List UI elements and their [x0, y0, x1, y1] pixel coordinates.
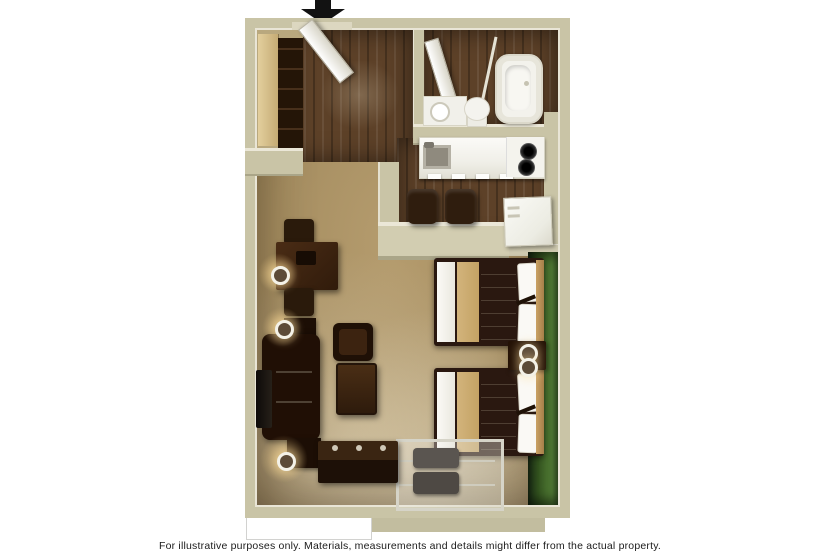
- headboard: [536, 260, 544, 344]
- console-knob: [356, 445, 362, 451]
- bed-1: [434, 258, 544, 346]
- table-lamp: [275, 320, 294, 339]
- cooktop-burner: [518, 159, 535, 176]
- counter-drawer-handle: [476, 174, 489, 179]
- cooktop-burner: [520, 143, 537, 160]
- floor-plan-page: For illustrative purposes only. Material…: [0, 0, 820, 560]
- bathtub-drain: [524, 81, 529, 86]
- tv: [256, 370, 272, 428]
- refrigerator-handle: [508, 214, 520, 217]
- closet-shelves: [278, 38, 303, 148]
- kitchen-sink: [423, 145, 451, 169]
- bed-accent-stripe: [457, 262, 479, 342]
- sofa-cushions: [276, 343, 312, 431]
- vanity-sink: [430, 102, 450, 122]
- nightstand-lamp: [519, 358, 538, 377]
- vanity: [423, 96, 467, 126]
- console-knob: [380, 445, 386, 451]
- counter-drawer-handle: [428, 174, 441, 179]
- luggage-rack: [396, 439, 504, 511]
- kitchen-half-wall: [378, 222, 509, 260]
- bathtub-basin: [505, 65, 531, 111]
- entrance-arrow-stem: [315, 0, 331, 9]
- console-knob: [332, 445, 338, 451]
- headboard: [536, 370, 544, 454]
- bed-foot-linen: [437, 262, 455, 342]
- kitchen-faucet: [424, 142, 434, 148]
- luggage-bag: [413, 448, 459, 468]
- wardrobe: [258, 34, 279, 146]
- armchair: [333, 323, 373, 361]
- ottoman: [336, 363, 377, 415]
- bar-stool: [407, 189, 438, 224]
- bathtub: [495, 54, 543, 124]
- closet-stub-wall: [245, 148, 303, 176]
- disclaimer-text: For illustrative purposes only. Material…: [0, 540, 820, 552]
- bed-duvet: [481, 262, 516, 342]
- armchair-cushion: [339, 329, 367, 355]
- bottom-wall-step: [370, 518, 545, 532]
- media-console: [318, 441, 398, 483]
- table-item: [296, 251, 316, 265]
- refrigerator: [503, 196, 553, 247]
- table-lamp: [277, 452, 296, 471]
- luggage-bag: [413, 472, 459, 494]
- patio-outline: [246, 518, 372, 540]
- wall-lamp: [271, 266, 290, 285]
- bar-stool: [445, 189, 476, 224]
- counter-drawer-handle: [452, 174, 465, 179]
- refrigerator-handle: [507, 206, 519, 209]
- toilet: [464, 97, 490, 121]
